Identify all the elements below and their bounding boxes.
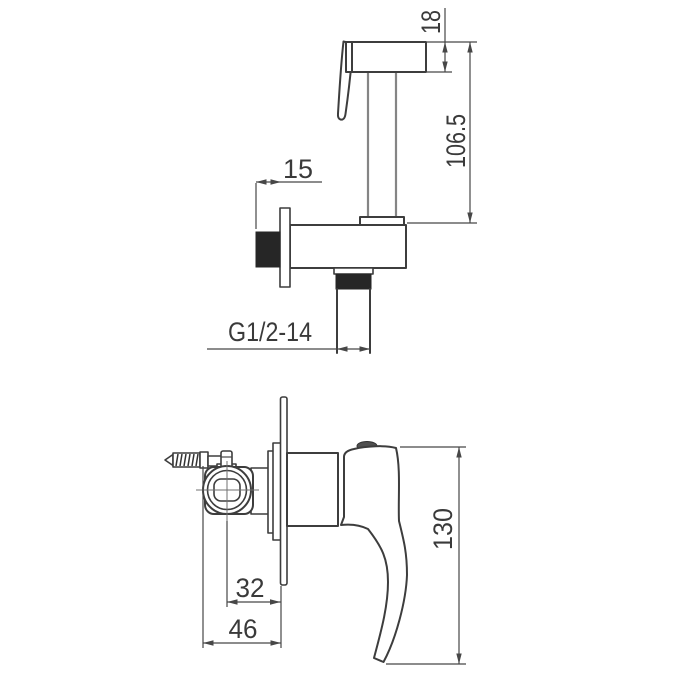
wall-bracket-body <box>290 225 406 268</box>
outlet-collar <box>334 268 373 274</box>
technical-drawing-page: 18 106.5 15 G1/2-14 <box>0 0 700 700</box>
wall-flange-plate <box>280 208 290 287</box>
dim-130-label: 130 <box>428 508 458 550</box>
thread-callout-label: G1/2-14 <box>228 317 312 347</box>
dim-46-label: 46 <box>229 614 258 644</box>
screw-tip <box>165 455 173 466</box>
sprayer-head <box>352 42 426 72</box>
thread-callout: G1/2-14 <box>207 317 370 349</box>
stem-collar <box>360 217 404 225</box>
mixer-valve-side-view: 32 46 130 <box>165 397 466 664</box>
cartridge-housing <box>287 453 338 526</box>
outlet-thread <box>336 274 371 289</box>
dim-32-label: 32 <box>236 573 265 603</box>
threaded-inlet <box>256 232 280 267</box>
dim-15-label: 15 <box>283 154 313 184</box>
dim-106-5-label: 106.5 <box>441 114 471 168</box>
handle-lever <box>341 446 407 662</box>
technical-drawing-canvas: 18 106.5 15 G1/2-14 <box>0 0 700 700</box>
dim-18-label: 18 <box>416 10 446 34</box>
screw-collar <box>200 452 208 468</box>
sprayer-side-view: 18 106.5 15 G1/2-14 <box>207 8 477 353</box>
